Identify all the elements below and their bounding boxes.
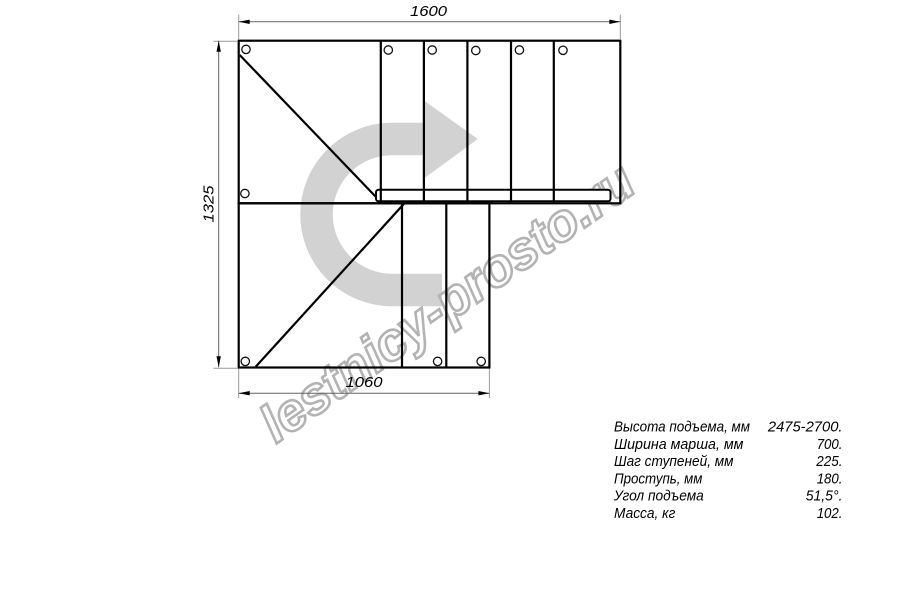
svg-text:1325: 1325 <box>201 185 218 223</box>
svg-text:Шаг ступеней, мм: Шаг ступеней, мм <box>614 453 734 470</box>
svg-text:102.: 102. <box>817 505 843 522</box>
svg-text:1600: 1600 <box>410 3 448 20</box>
svg-text:Масса, кг: Масса, кг <box>614 505 676 522</box>
svg-text:1060: 1060 <box>346 374 384 391</box>
svg-text:Угол подъема: Угол подъема <box>613 488 704 505</box>
svg-text:51,5°.: 51,5°. <box>806 488 843 505</box>
svg-text:700.: 700. <box>817 436 843 453</box>
svg-text:180.: 180. <box>817 470 843 487</box>
svg-text:2475-2700.: 2475-2700. <box>767 419 843 436</box>
svg-text:Высота подъема, мм: Высота подъема, мм <box>614 419 750 436</box>
svg-text:Ширина марша, мм: Ширина марша, мм <box>614 436 743 453</box>
svg-text:Проступь, мм: Проступь, мм <box>614 470 702 487</box>
svg-text:225.: 225. <box>815 453 842 470</box>
